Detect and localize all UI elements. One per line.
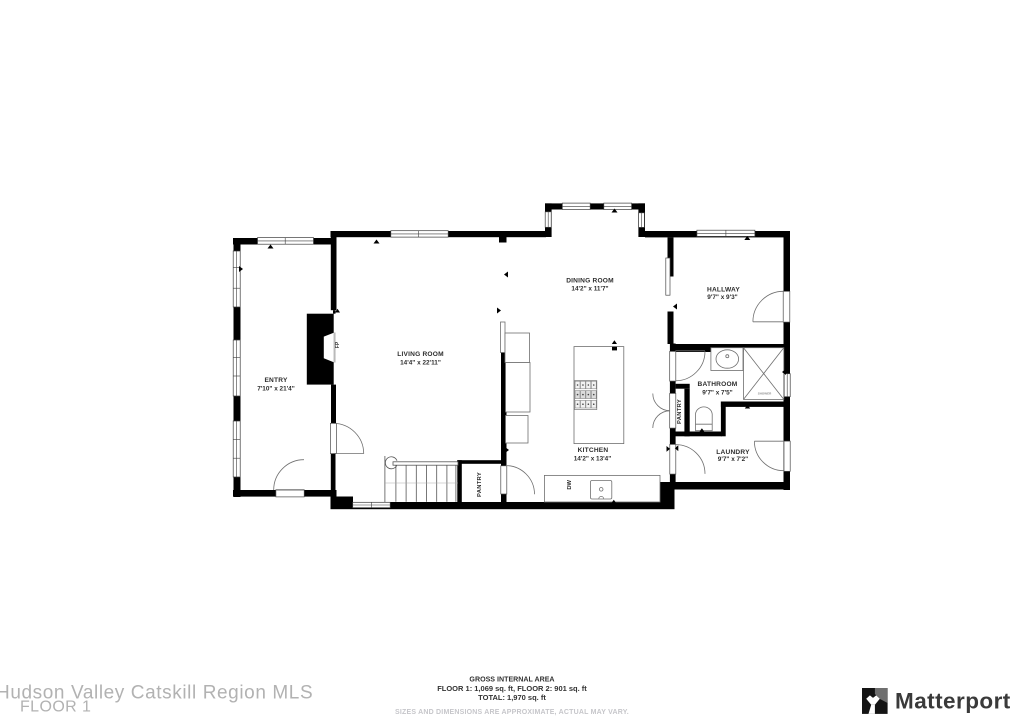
svg-text:KITCHEN: KITCHEN (578, 447, 609, 454)
svg-text:9'7" x 7'5": 9'7" x 7'5" (702, 390, 732, 397)
svg-text:ENTRY: ENTRY (264, 377, 288, 384)
svg-text:14'4" x 22'11": 14'4" x 22'11" (400, 360, 441, 367)
svg-text:PANTRY: PANTRY (677, 399, 683, 424)
svg-text:DW: DW (567, 479, 573, 489)
svg-text:LIVING ROOM: LIVING ROOM (397, 351, 444, 358)
svg-text:FP: FP (335, 341, 341, 348)
svg-text:Matterport: Matterport (895, 689, 1011, 714)
svg-text:14'2" x 11'7": 14'2" x 11'7" (571, 286, 608, 293)
svg-text:14'2" x 13'4": 14'2" x 13'4" (574, 456, 612, 463)
svg-text:GROSS INTERNAL AREA: GROSS INTERNAL AREA (469, 676, 554, 684)
svg-text:7'10" x 21'4": 7'10" x 21'4" (257, 386, 295, 393)
svg-text:LAUNDRY: LAUNDRY (716, 449, 750, 456)
svg-text:PANTRY: PANTRY (477, 472, 483, 497)
svg-text:SIZES AND DIMENSIONS ARE APPRO: SIZES AND DIMENSIONS ARE APPROXIMATE, AC… (395, 709, 629, 716)
svg-text:FLOOR 1: FLOOR 1 (20, 699, 91, 716)
svg-text:9'7" x 7'2": 9'7" x 7'2" (718, 456, 748, 463)
svg-text:FLOOR 1: 1,069 sq. ft, FLOOR 2: FLOOR 1: 1,069 sq. ft, FLOOR 2: 901 sq. … (437, 684, 587, 693)
svg-text:9'7" x 9'3": 9'7" x 9'3" (707, 294, 737, 301)
svg-text:TOTAL: 1,970 sq. ft: TOTAL: 1,970 sq. ft (478, 693, 546, 702)
svg-text:SHOWER: SHOWER (758, 392, 772, 396)
svg-text:BATHROOM: BATHROOM (698, 381, 738, 388)
svg-text:DINING ROOM: DINING ROOM (566, 278, 614, 285)
svg-text:HALLWAY: HALLWAY (707, 287, 740, 294)
